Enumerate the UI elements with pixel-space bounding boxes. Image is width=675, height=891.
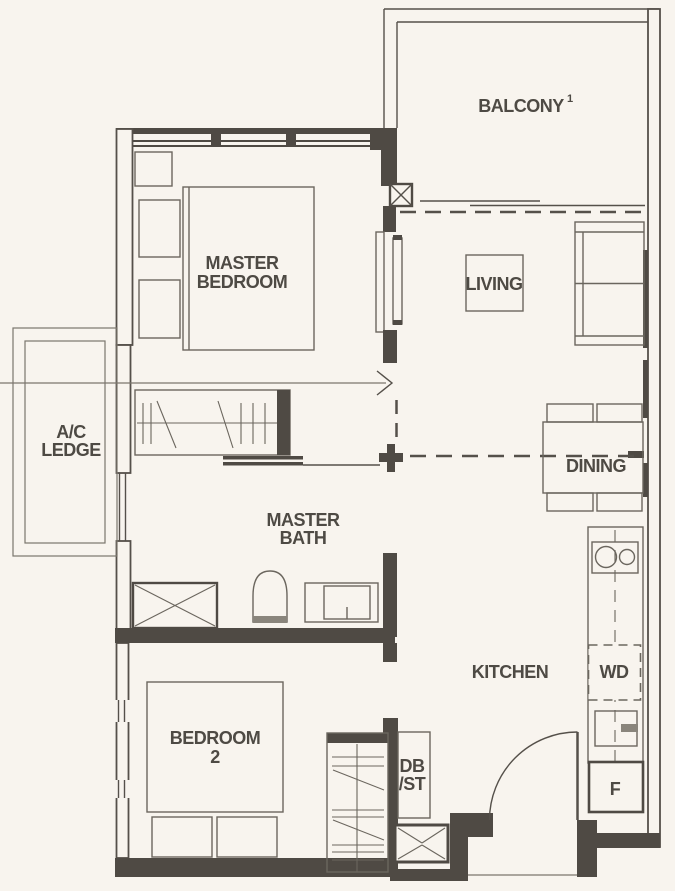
shower bbox=[133, 583, 217, 628]
shaft-box bbox=[395, 825, 448, 862]
db-st-label-1: DB bbox=[400, 756, 425, 776]
bedroom2-label-1: BEDROOM bbox=[170, 728, 261, 748]
master-bath-label-2: BATH bbox=[280, 528, 327, 548]
floor-plan-drawing: MASTER BEDROOM BALCONY 1 LIVING A/C LEDG… bbox=[0, 0, 675, 891]
master-bath-label-1: MASTER bbox=[267, 510, 341, 530]
master-bedroom-label-1: MASTER bbox=[206, 253, 280, 273]
balcony-superscript: 1 bbox=[567, 93, 573, 105]
db-st-label-2: /ST bbox=[399, 774, 426, 794]
washer-dryer-label: WD bbox=[600, 662, 629, 682]
dining-label: DINING bbox=[566, 456, 626, 476]
ac-ledge-label-1: A/C bbox=[56, 422, 86, 442]
living-label: LIVING bbox=[465, 274, 522, 294]
kitchen-label: KITCHEN bbox=[472, 662, 549, 682]
balcony-label: BALCONY bbox=[478, 96, 564, 116]
column-marker bbox=[390, 184, 412, 206]
fridge-label: F bbox=[610, 779, 621, 799]
bedroom2-label-2: 2 bbox=[210, 747, 220, 767]
master-bedroom-label-2: BEDROOM bbox=[197, 272, 288, 292]
ac-ledge-label-2: LEDGE bbox=[41, 440, 101, 460]
floor-plan-page: MASTER BEDROOM BALCONY 1 LIVING A/C LEDG… bbox=[0, 0, 675, 891]
